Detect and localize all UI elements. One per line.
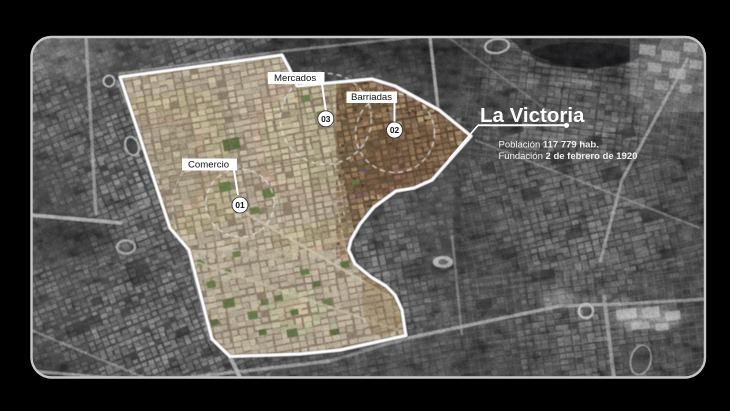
svg-text:Población 117 779 hab.: Población 117 779 hab. — [499, 140, 599, 151]
svg-text:01: 01 — [235, 200, 245, 210]
svg-text:Fundación 2 de febrero de 1920: Fundación 2 de febrero de 1920 — [499, 151, 638, 162]
svg-text:La Victoria: La Victoria — [480, 104, 585, 127]
svg-text:Mercados: Mercados — [274, 73, 316, 84]
svg-text:Comercio: Comercio — [188, 159, 229, 170]
svg-text:Barriadas: Barriadas — [351, 92, 392, 103]
svg-text:02: 02 — [390, 125, 400, 135]
svg-text:03: 03 — [321, 114, 331, 124]
